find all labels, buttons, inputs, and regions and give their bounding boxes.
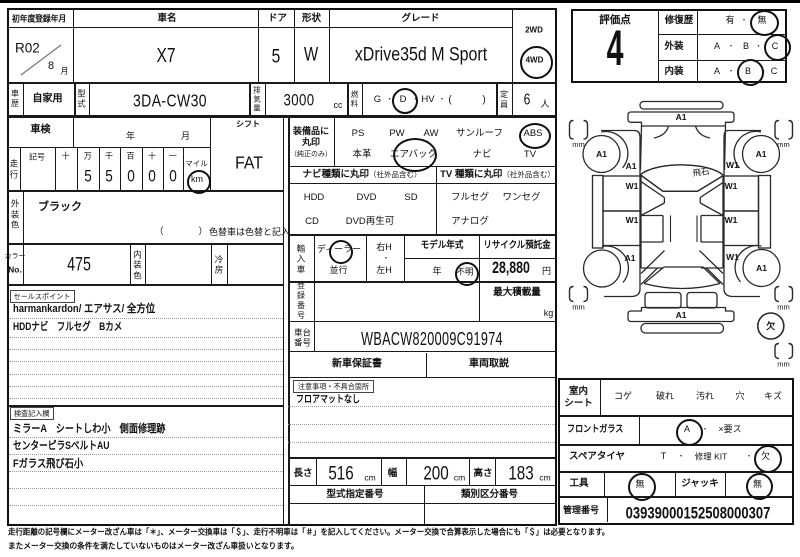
svg-text:欠: 欠: [766, 320, 775, 331]
svg-text:A1: A1: [596, 149, 607, 159]
svg-text:W1: W1: [725, 215, 738, 225]
svg-text:A1: A1: [626, 161, 637, 171]
svg-text:W1: W1: [626, 181, 639, 191]
svg-text:A1: A1: [756, 263, 767, 273]
svg-text:W1: W1: [726, 160, 739, 170]
svg-text:mm: mm: [572, 140, 585, 149]
svg-text:mm: mm: [777, 140, 790, 149]
svg-text:mm: mm: [572, 303, 585, 312]
svg-text:W1: W1: [726, 252, 739, 262]
svg-text:A1: A1: [625, 253, 636, 263]
svg-text:A1: A1: [676, 310, 687, 320]
svg-text:W1: W1: [626, 215, 639, 225]
svg-text:A1: A1: [756, 149, 767, 159]
svg-text:mm: mm: [777, 360, 790, 369]
svg-text:W1: W1: [725, 181, 738, 191]
svg-text:A1: A1: [676, 112, 687, 122]
svg-text:mm: mm: [777, 303, 790, 312]
